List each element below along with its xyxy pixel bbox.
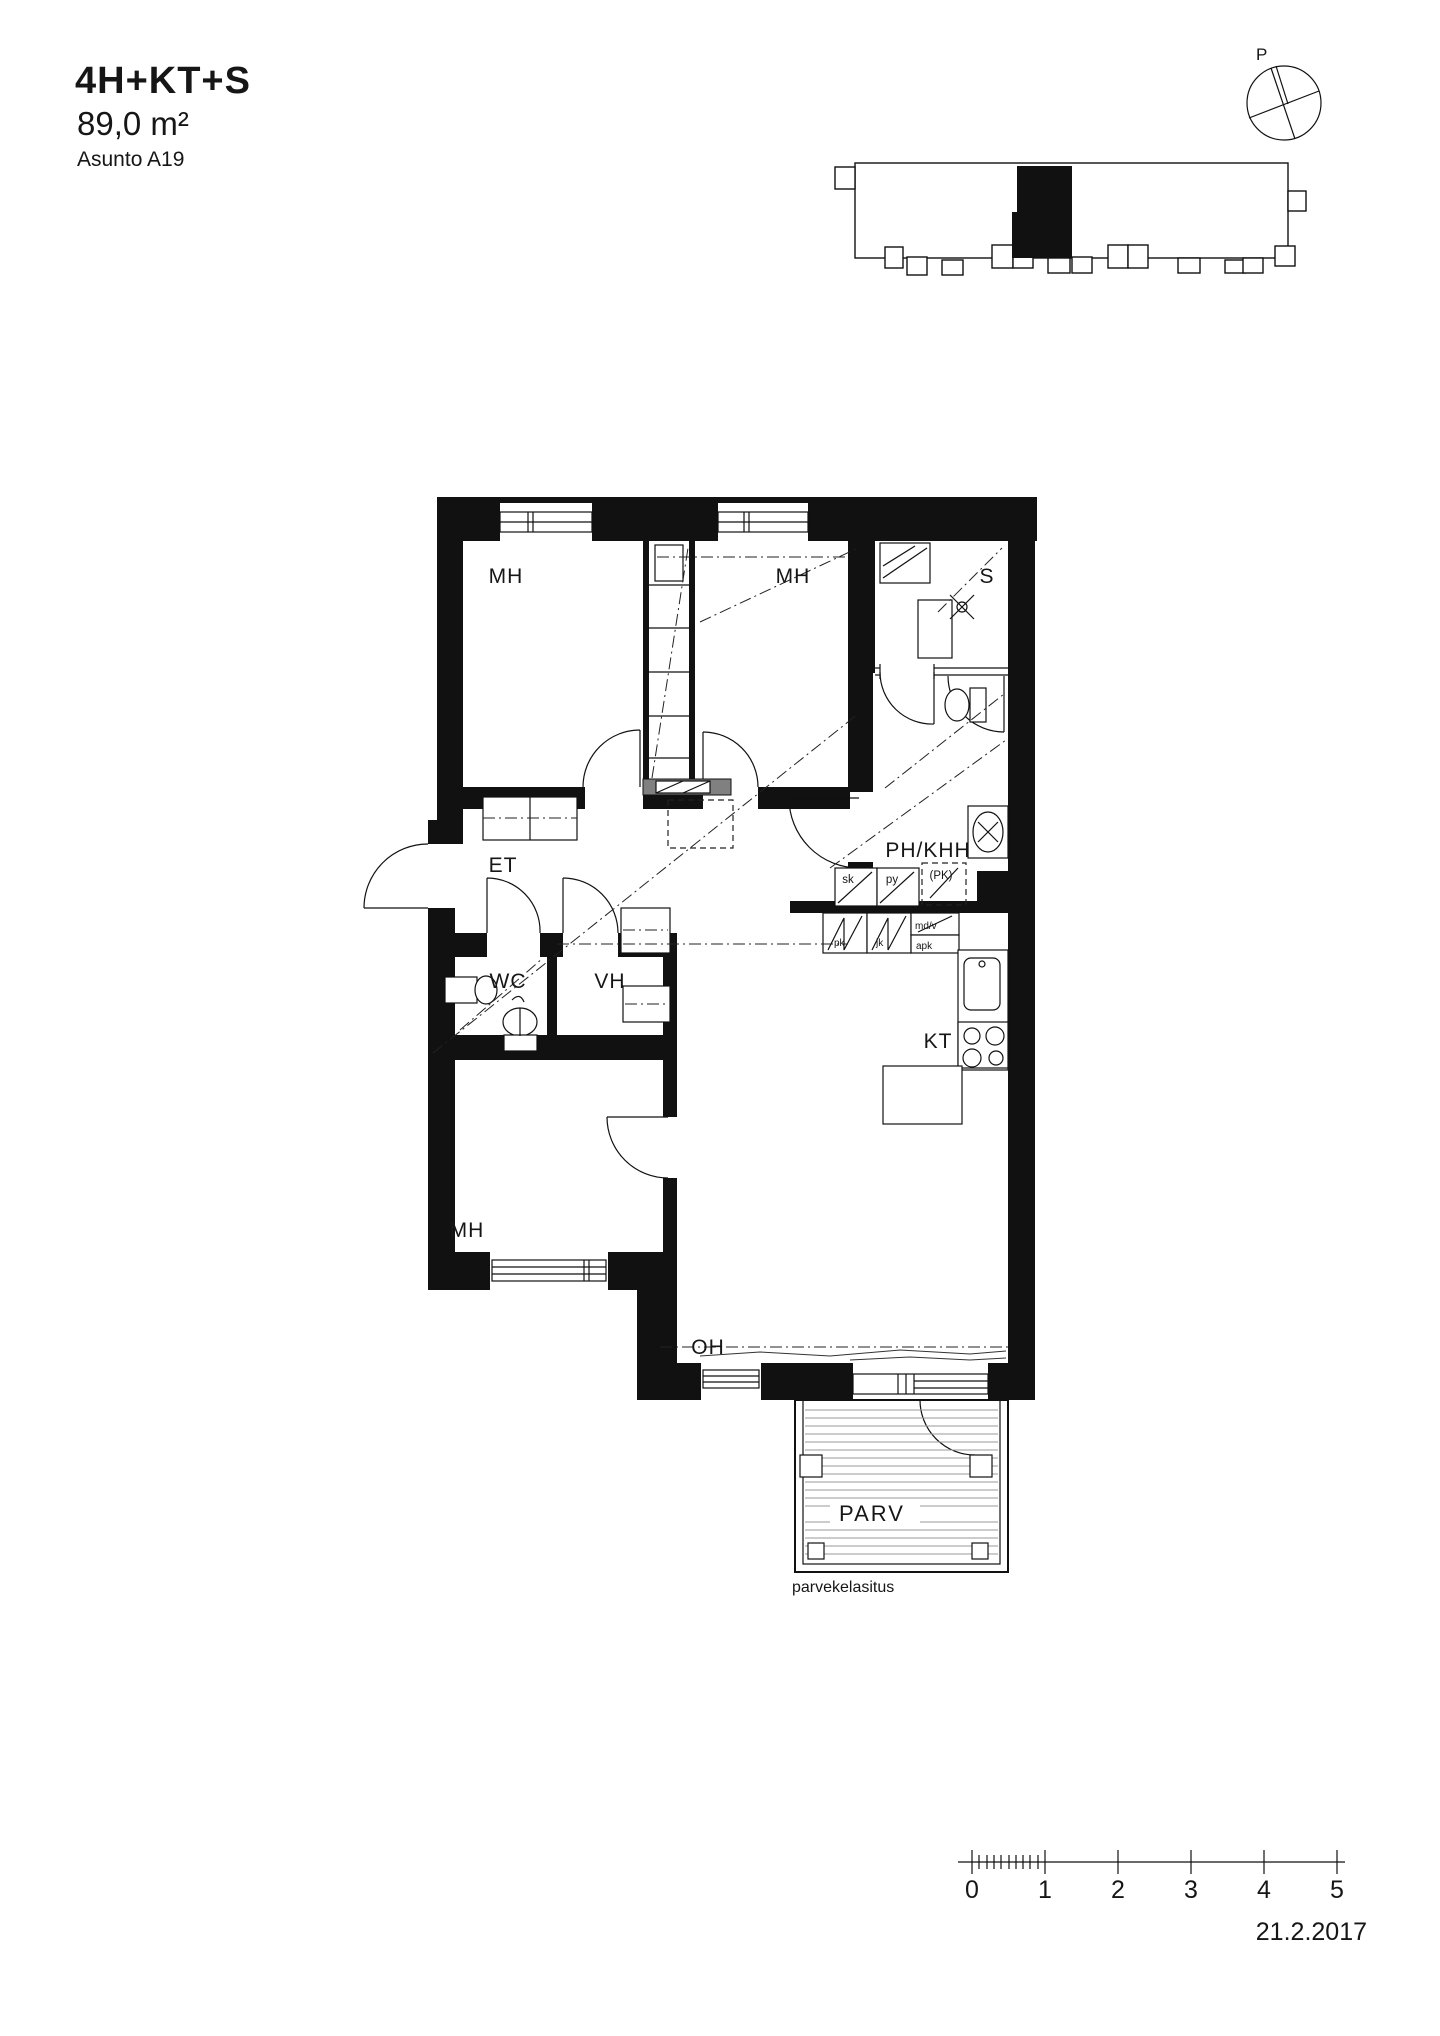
stove [958, 1022, 1008, 1068]
north-compass: P [1247, 45, 1321, 140]
door-mh1 [583, 730, 640, 787]
balcony-glazing-note: parvekelasitus [792, 1579, 894, 1596]
room-label-kt: KT [924, 1030, 953, 1053]
room-label-et: ET [489, 854, 518, 877]
scale-tick-4: 4 [1257, 1876, 1271, 1904]
vh-closets [621, 908, 670, 1022]
floor-plan-drawing: 4H+KT+S 89,0 m² Asunto A19 P [0, 0, 1440, 2036]
compass-cross-line [1249, 91, 1319, 118]
et-wardrobe [483, 797, 577, 840]
apartment-location-marker [1017, 166, 1072, 258]
scale-tick-2: 2 [1111, 1876, 1125, 1904]
date-label: 21.2.2017 [1256, 1918, 1367, 1946]
laundry-appliances: sk py (PK) [835, 863, 966, 906]
toilet [945, 688, 986, 722]
room-label-mh1: MH [489, 565, 524, 588]
scale-bar: 0 1 2 3 4 5 [958, 1850, 1345, 1904]
window-mh2 [718, 503, 808, 541]
apartment-area-label: 89,0 m² [77, 105, 189, 142]
floor-plan-page: 4H+KT+S 89,0 m² Asunto A19 P [0, 0, 1440, 2036]
scale-tick-3: 3 [1184, 1876, 1198, 1904]
door-sauna [880, 672, 934, 724]
balcony-door-window [853, 1369, 988, 1399]
north-label: P [1256, 45, 1267, 64]
room-label-wc: WC [490, 970, 527, 993]
compass-needle [1271, 68, 1295, 139]
window-oh [701, 1365, 761, 1393]
room-label-sauna: S [979, 565, 994, 588]
apartment-type-label: 4H+KT+S [75, 60, 251, 102]
door-balcony [920, 1400, 975, 1455]
kitchen-island [883, 1066, 962, 1124]
wc-toilet [503, 996, 537, 1051]
scale-tick-0: 0 [965, 1876, 979, 1904]
washbasin [968, 806, 1008, 858]
room-label-oh: OH [691, 1336, 725, 1359]
compass-circle [1247, 66, 1321, 140]
label-py: py [886, 874, 898, 886]
window-mh1 [500, 503, 592, 541]
floor-line [700, 1350, 1006, 1356]
balcony: PARV parvekelasitus [792, 1400, 1008, 1596]
scale-tick-1: 1 [1038, 1876, 1052, 1904]
room-label-mh2: MH [776, 565, 811, 588]
sauna-bench [918, 600, 952, 658]
kitchen-fixtures: pk jk md/v apk [823, 913, 1008, 1124]
reference-lines [433, 548, 1008, 1360]
door-mh3 [607, 1117, 668, 1178]
room-label-parv: PARV [839, 1501, 905, 1526]
shower-symbol [950, 595, 974, 619]
room-label-mh3: MH [450, 1219, 485, 1242]
sauna-fixtures [880, 543, 974, 658]
entry-door [364, 844, 428, 908]
scale-tick-5: 5 [1330, 1876, 1344, 1904]
apartment-id-label: Asunto A19 [77, 148, 184, 171]
door-vh [563, 878, 618, 933]
building-key-plan [835, 163, 1306, 275]
door-wc [487, 878, 540, 933]
label-jk: jk [875, 938, 884, 949]
title-block: 4H+KT+S 89,0 m² Asunto A19 [75, 60, 251, 171]
room-label-ph-khh: PH/KHH [885, 839, 970, 862]
window-mh3 [490, 1253, 608, 1289]
label-apk: apk [916, 941, 933, 952]
room-labels: MH MH S PH/KHH ET WC VH KT MH OH [450, 565, 995, 1359]
balcony-decking [805, 1410, 998, 1554]
room-label-vh: VH [594, 970, 625, 993]
label-sk: sk [842, 874, 854, 886]
label-md-v: md/v [915, 921, 937, 932]
label-pk-reserve: (PK) [930, 870, 953, 882]
sauna-glass-wall [875, 664, 1008, 679]
closets [483, 545, 733, 1022]
